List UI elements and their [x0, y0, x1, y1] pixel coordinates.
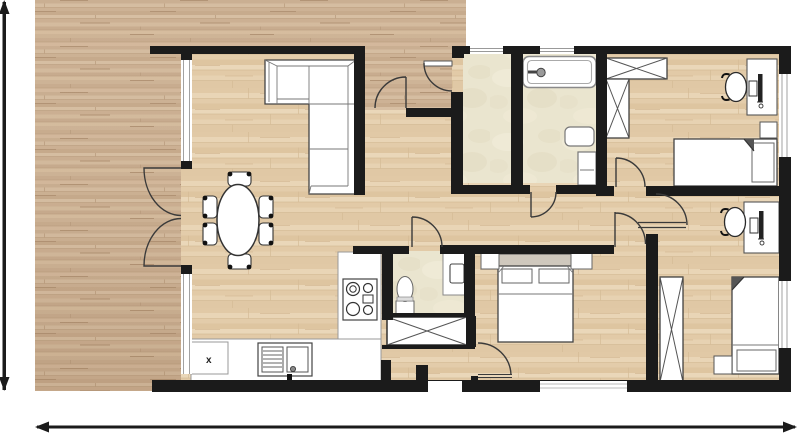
svg-text:x: x [206, 355, 212, 366]
